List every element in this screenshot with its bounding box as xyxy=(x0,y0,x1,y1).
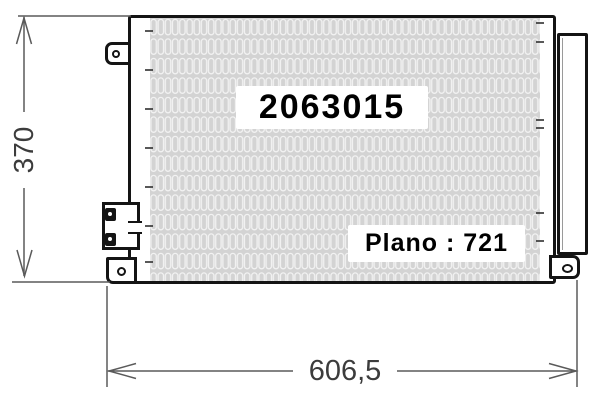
arrow-right-icon xyxy=(549,364,576,379)
mounting-bracket-bottom-right xyxy=(549,255,580,279)
width-dimension-label: 606,5 xyxy=(293,352,397,390)
height-dimension-label: 370 xyxy=(8,112,40,188)
drier-wall-line xyxy=(562,38,563,250)
body-edge-notch xyxy=(128,221,142,234)
arrow-left-icon xyxy=(109,364,136,379)
bracket-hole xyxy=(562,264,573,273)
arrow-up-icon xyxy=(17,18,32,44)
mounting-bracket-bottom-left xyxy=(106,257,137,284)
tab-hole xyxy=(112,50,120,58)
condenser-technical-drawing: 370 606,5 2063015 Plano : 721 xyxy=(0,0,600,400)
port-opening xyxy=(108,212,112,216)
port-opening xyxy=(108,237,112,241)
right-header-tank xyxy=(540,18,553,281)
part-number-label: 2063015 xyxy=(236,86,428,129)
plano-label: Plano : 721 xyxy=(348,225,525,262)
connector-port-bottom xyxy=(105,233,116,246)
receiver-drier xyxy=(557,33,588,255)
connector-port-top xyxy=(105,208,116,221)
bracket-hole xyxy=(117,267,126,276)
arrow-down-icon xyxy=(17,250,32,276)
